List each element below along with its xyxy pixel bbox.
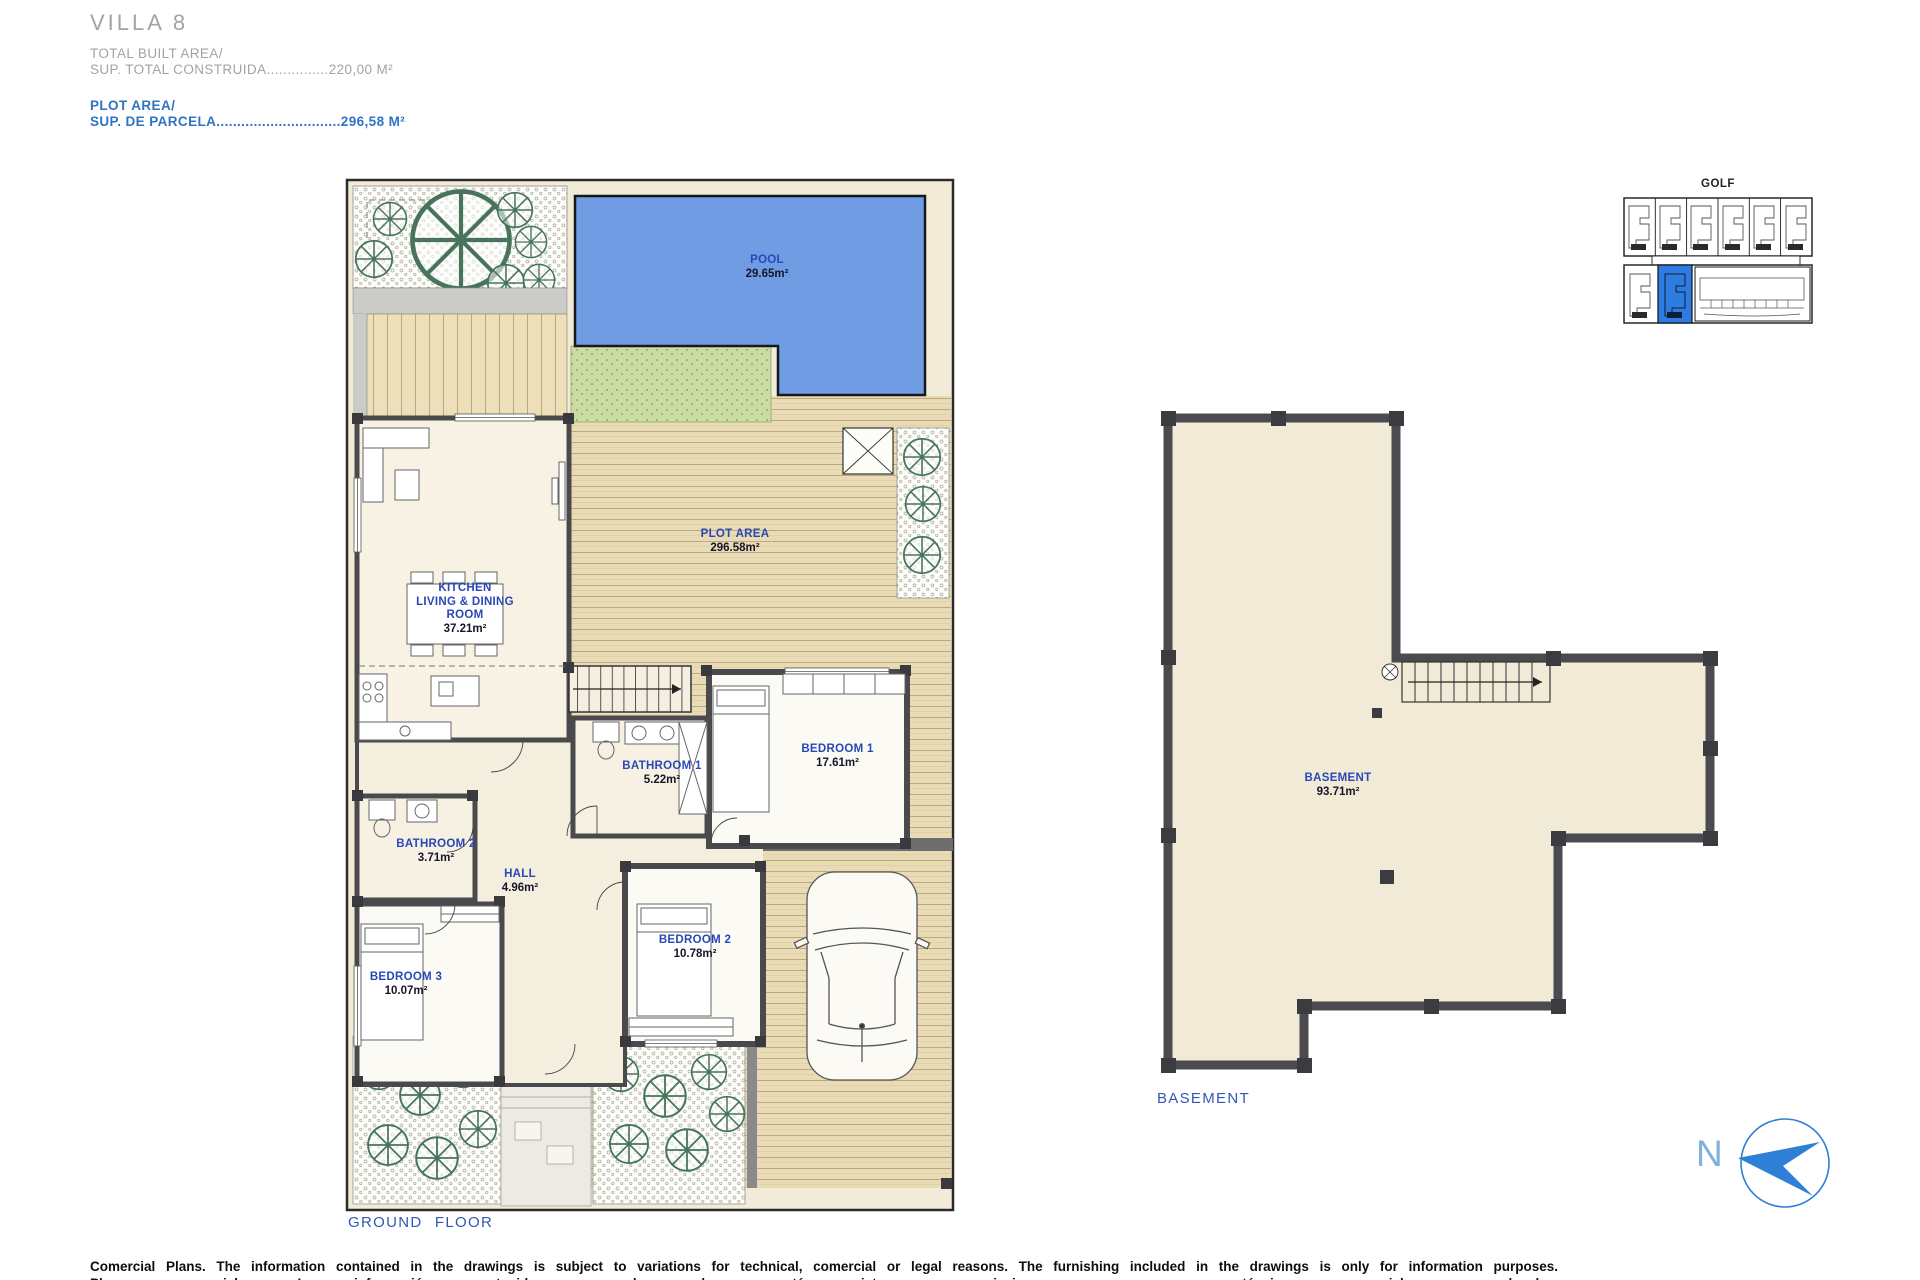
- disclaimer: Comercial Plans. The information contain…: [90, 1259, 1558, 1280]
- tree-icon: [904, 439, 940, 475]
- basement-drawing: [1158, 408, 1723, 1073]
- walkway: [353, 288, 567, 314]
- car-icon: [794, 872, 929, 1080]
- tree-icon: [666, 1129, 708, 1171]
- tree-icon: [460, 1111, 496, 1147]
- ground-floor-plan: POOL 29.65m² PLOT AREA 296.58m² KITCHEN …: [345, 178, 955, 1213]
- total-built-area-block: TOTAL BUILT AREA/ SUP. TOTAL CONSTRUIDA.…: [90, 46, 393, 78]
- plot-area-block: PLOT AREA/ SUP. DE PARCELA..............…: [90, 98, 405, 130]
- row-connector: [1652, 256, 1800, 265]
- tree-icon: [610, 1125, 648, 1163]
- tree-icon: [644, 1075, 686, 1117]
- grass-patch: [571, 346, 771, 422]
- total-built-area-label: TOTAL BUILT AREA/: [90, 46, 393, 62]
- total-built-area-value: SUP. TOTAL CONSTRUIDA...............220,…: [90, 62, 393, 78]
- basement-outline: [1168, 418, 1710, 1065]
- interior-pillar: [1380, 870, 1394, 884]
- disclaimer-line2: Planos comerciales. La información conte…: [90, 1276, 1558, 1280]
- key-plan-title: GOLF: [1618, 178, 1818, 190]
- ground-floor-caption: GROUND FLOOR: [348, 1214, 493, 1231]
- key-plan-drawing: [1618, 196, 1818, 328]
- plot-area-value: SUP. DE PARCELA.........................…: [90, 114, 405, 130]
- plan-sheet: VILLA 8 TOTAL BUILT AREA/ SUP. TOTAL CON…: [0, 0, 1920, 1280]
- disclaimer-line1: Comercial Plans. The information contain…: [90, 1259, 1558, 1276]
- tree-icon: [416, 1137, 458, 1179]
- tree-icon: [368, 1125, 408, 1165]
- street-access: [843, 428, 893, 474]
- tree-icon: [498, 193, 533, 228]
- planter-right: [897, 428, 949, 598]
- compass: N: [1690, 1085, 1860, 1225]
- garden-top: [353, 186, 567, 301]
- stairs-ground: [569, 666, 691, 712]
- basement-plan: BASEMENT 93.71m²: [1158, 408, 1723, 1073]
- location-key-plan: GOLF: [1618, 172, 1818, 330]
- building-block: [1695, 267, 1810, 321]
- tree-icon: [356, 241, 392, 277]
- page-title: VILLA 8: [90, 10, 188, 36]
- tree-icon: [906, 487, 941, 522]
- entry-walk: [501, 1074, 591, 1206]
- tree-icon: [710, 1097, 745, 1132]
- tree-icon: [692, 1055, 727, 1090]
- tree-icon: [374, 203, 407, 236]
- deck-pergola: [367, 314, 567, 418]
- tree-icon: [904, 537, 940, 573]
- walkway-side: [353, 314, 367, 418]
- basement-caption: BASEMENT: [1157, 1090, 1250, 1107]
- stairs-basement: [1382, 662, 1550, 702]
- tree-icon: [515, 226, 546, 257]
- plot-area-label: PLOT AREA/: [90, 98, 405, 114]
- dining-table: [407, 584, 503, 644]
- north-label: N: [1696, 1133, 1723, 1175]
- ground-floor-drawing: [345, 178, 955, 1213]
- kitchen-island: [431, 676, 479, 706]
